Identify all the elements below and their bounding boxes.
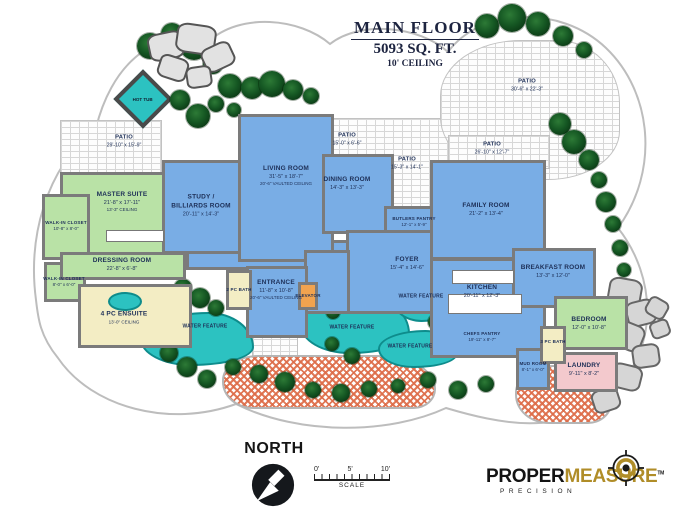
tree-icon <box>591 172 607 188</box>
room-dims: 21'-2" x 13'-4" <box>469 211 503 218</box>
label-water-feature: WATER FEATURE <box>388 344 433 351</box>
tree-icon <box>449 381 467 399</box>
label-patio-living: PATIO15'-0" x 6'-6" <box>332 133 361 148</box>
bathtub <box>108 292 142 311</box>
room-dims: 21'-8" x 17'-11" <box>104 200 140 207</box>
tree-icon <box>526 12 550 36</box>
room-name: 4 PC ENSUITE <box>101 311 148 320</box>
label-patio-nw: PATIO29'-10" x 15'-9" <box>107 135 142 150</box>
dressing-island <box>106 230 164 242</box>
room-dims: 22'-8" x 6'-8" <box>107 266 138 273</box>
room-name: FOYER <box>395 256 418 265</box>
room-name: LAUNDRY <box>568 362 601 371</box>
patio-dims: 26'-10" x 12'-7" <box>475 149 510 156</box>
label-dressing-room: DRESSING ROOM22'-8" x 6'-8" <box>93 257 152 273</box>
room-dims: 10'-8" x 8'-0" <box>53 226 78 232</box>
tree-icon <box>553 26 573 46</box>
room-name: ELEVATOR <box>295 293 320 299</box>
scale-tick-0: 0' <box>314 466 319 473</box>
room-ceiling: 20'-6" VAULTED CEILING <box>260 181 312 187</box>
water-feature-name: WATER FEATURE <box>399 294 444 301</box>
room-ceiling: 13'-0" CEILING <box>109 319 140 325</box>
tree-icon <box>420 372 436 388</box>
room-name: FAMILY ROOM <box>462 202 509 211</box>
label-water-feature: WATER FEATURE <box>183 324 228 331</box>
label-ensuite: 4 PC ENSUITE13'-0" CEILING <box>101 311 148 326</box>
label-living: LIVING ROOM31'-5" x 18'-7"20'-6" VAULTED… <box>260 165 312 187</box>
plan-ceiling: 10' CEILING <box>320 59 510 69</box>
tree-icon <box>344 348 360 364</box>
label-water-feature: WATER FEATURE <box>330 325 375 332</box>
patio-name: PATIO <box>398 157 416 165</box>
patio-name: PATIO <box>483 142 501 150</box>
label-mud-room: MUD ROOM8'-1" x 6'-0" <box>511 361 555 373</box>
tree-icon <box>361 381 377 397</box>
plan-title: MAIN FLOOR <box>351 18 479 40</box>
label-master-suite: MASTER SUITE21'-8" x 17'-11"13'-3" CEILI… <box>97 191 148 213</box>
room-dims: 8'-0" x 6'-0" <box>53 282 76 288</box>
tree-icon <box>259 71 285 97</box>
label-patio-family: PATIO26'-10" x 12'-7" <box>475 142 510 157</box>
tree-icon <box>250 365 268 383</box>
label-foyer: FOYER15'-4" x 14'-6" <box>390 256 424 272</box>
room-name: LIVING ROOM <box>263 165 309 174</box>
label-dining: DINING ROOM14'-3" x 13'-3" <box>324 176 371 192</box>
patio-name: PATIO <box>518 79 536 87</box>
label-study: STUDY / BILLIARDS ROOM20'-11" x 14'-3" <box>170 194 232 219</box>
tree-icon <box>605 216 621 232</box>
room-name: MASTER SUITE <box>97 191 148 200</box>
label-walkin-closet-2: WALK-IN CLOSET8'-0" x 6'-0" <box>42 276 86 288</box>
tree-icon <box>617 263 631 277</box>
tree-icon <box>190 288 210 308</box>
patio-dims: 15'-0" x 6'-6" <box>332 140 361 147</box>
rock-shape <box>185 64 214 89</box>
plan-area: 5093 SQ. FT. <box>320 41 510 58</box>
tree-icon <box>325 337 339 351</box>
logo-word-proper: PROPER <box>486 466 564 487</box>
tree-icon <box>579 150 599 170</box>
room-name: DRESSING ROOM <box>93 257 152 266</box>
patio-dims: 15'-3" x 14'-1" <box>391 164 423 171</box>
label-bedroom: BEDROOM12'-0" x 10'-8" <box>571 316 606 332</box>
room-dims: 15'-4" x 14'-6" <box>390 265 424 272</box>
tree-icon <box>275 372 295 392</box>
tree-icon <box>612 240 628 256</box>
room-dims: 13'-3" x 12'-0" <box>536 273 570 280</box>
tree-icon <box>225 359 241 375</box>
logo-tagline: PRECISION <box>500 488 658 495</box>
room-name: 3 PC BATH <box>540 339 565 345</box>
propermeasure-logo: PROPERMEASURETM PRECISION <box>486 466 658 495</box>
room-name: BREAKFAST ROOM <box>521 264 586 273</box>
tree-icon <box>305 382 321 398</box>
label-powder-bath: 2 PC BATH <box>217 287 261 293</box>
north-compass-icon <box>250 462 296 508</box>
north-label: NORTH <box>228 440 320 458</box>
tree-icon <box>596 192 616 212</box>
room-name: KITCHEN <box>467 284 497 293</box>
room-dims: 14'-3" x 13'-3" <box>330 185 364 192</box>
label-patio-ne: PATIO30'-6" x 22'-3" <box>511 79 543 94</box>
scale-caption: SCALE <box>314 482 390 489</box>
scale-tick-5: 5' <box>347 466 352 473</box>
label-walkin-closet-1: WALK-IN CLOSET10'-8" x 8'-0" <box>44 220 88 232</box>
tree-icon <box>576 42 592 58</box>
tree-icon <box>303 88 319 104</box>
tree-icon <box>198 370 216 388</box>
tree-icon <box>332 384 350 402</box>
tree-icon <box>218 74 242 98</box>
title-block: MAIN FLOOR 5093 SQ. FT. 10' CEILING <box>320 18 510 69</box>
room-name: STUDY / BILLIARDS ROOM <box>170 194 232 212</box>
label-patio-dining: PATIO15'-3" x 14'-1" <box>391 157 423 172</box>
room-dims: 12'-0" x 10'-8" <box>572 325 606 332</box>
label-breakfast: BREAKFAST ROOM13'-3" x 12'-0" <box>521 264 586 280</box>
room-name: ENTRANCE <box>257 279 295 288</box>
tree-icon <box>186 104 210 128</box>
room-dims: 20'-11" x 12'-3" <box>464 293 500 300</box>
tree-icon <box>177 357 197 377</box>
scale-bar: 0' 5' 10' SCALE <box>314 466 390 489</box>
label-kitchen: KITCHEN20'-11" x 12'-3" <box>464 284 500 300</box>
tree-icon <box>283 80 303 100</box>
water-feature-name: WATER FEATURE <box>330 325 375 332</box>
tree-icon <box>170 90 190 110</box>
patio-name: PATIO <box>338 133 356 141</box>
kitchen-island <box>452 270 514 284</box>
room-name: DINING ROOM <box>324 176 371 185</box>
label-chefs-pantry: CHEFS PANTRY19'-11" x 8'-7" <box>460 331 504 343</box>
logo-target-icon <box>608 450 644 486</box>
label-family: FAMILY ROOM21'-2" x 13'-4" <box>462 202 509 218</box>
room-dims: 31'-5" x 18'-7" <box>269 174 303 181</box>
patio-dims: 29'-10" x 15'-9" <box>107 142 142 149</box>
room-name: BEDROOM <box>571 316 606 325</box>
scale-ruler <box>314 474 390 481</box>
room-living <box>238 114 334 262</box>
room-name: 2 PC BATH <box>226 287 251 293</box>
label-elevator: ELEVATOR <box>286 293 330 299</box>
room-dims: 20'-11" x 14'-3" <box>183 211 219 218</box>
water-feature-name: WATER FEATURE <box>183 324 228 331</box>
label-laundry: LAUNDRY9'-11" x 8'-2" <box>568 362 601 378</box>
patio-name: PATIO <box>115 135 133 143</box>
room-dims: 12'-1" x 5'-9" <box>401 222 426 228</box>
hot-tub-label: HOT TUB <box>133 97 153 102</box>
water-feature-name: WATER FEATURE <box>388 344 433 351</box>
tree-icon <box>391 379 405 393</box>
floor-plan-canvas: HOT TUB MASTER SUITE21'-8" x 17'-11"13'-… <box>0 0 674 520</box>
scale-tick-10: 10' <box>381 466 390 473</box>
tree-icon <box>562 130 586 154</box>
tree-icon <box>208 96 224 112</box>
label-full-bath: 3 PC BATH <box>531 339 575 345</box>
room-ceiling: 13'-3" CEILING <box>107 207 138 213</box>
label-water-feature: WATER FEATURE <box>399 294 444 301</box>
room-dims: 9'-11" x 8'-2" <box>569 371 599 378</box>
label-butlers-pantry: BUTLERS PANTRY12'-1" x 5'-9" <box>392 216 436 228</box>
room-dims: 19'-11" x 8'-7" <box>468 337 495 343</box>
logo-trademark: TM <box>657 471 664 477</box>
tree-icon <box>478 376 494 392</box>
patio-dims: 30'-6" x 22'-3" <box>511 86 543 93</box>
room-dims: 8'-1" x 6'-0" <box>522 367 545 373</box>
tree-icon <box>208 300 224 316</box>
